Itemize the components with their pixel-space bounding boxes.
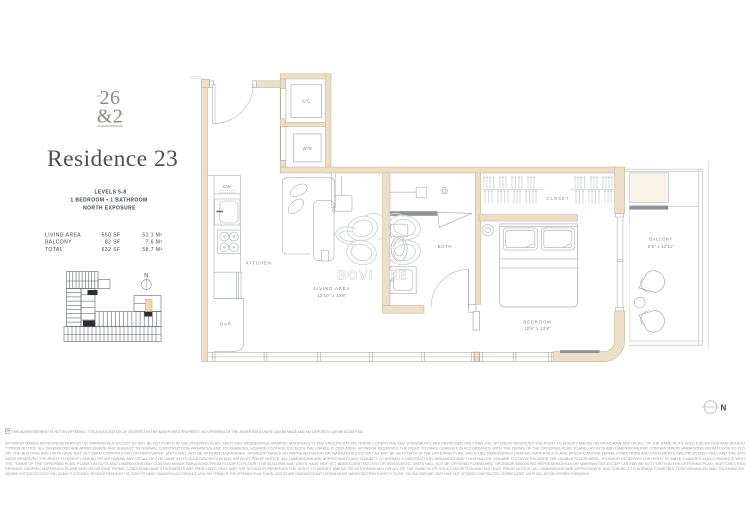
- svg-text:BAR: BAR: [220, 322, 232, 327]
- svg-text:A/C: A/C: [302, 99, 311, 104]
- svg-text:58.7 M²: 58.7 M²: [142, 247, 162, 253]
- svg-text:LEVELS 5-8: LEVELS 5-8: [94, 190, 126, 196]
- svg-text:TOTAL: TOTAL: [45, 247, 63, 253]
- svg-text:T PRIOR NOTICE. ALL DIMENSIONS: T PRIOR NOTICE. ALL DIMENSIONS ARE APPRO…: [5, 447, 745, 451]
- svg-text:DW: DW: [223, 184, 232, 189]
- svg-text:NORTH EXPOSURE: NORTH EXPOSURE: [83, 205, 136, 211]
- svg-text:BATH: BATH: [438, 244, 453, 249]
- svg-text:OR. THE BUILDING AND UNITS HAV: OR. THE BUILDING AND UNITS HAVE NOT YET …: [5, 452, 745, 456]
- svg-text:THE TERMS OF THE OFFERING PLAN: THE TERMS OF THE OFFERING PLAN. PLANS LA…: [5, 462, 746, 466]
- svg-text:BALCONY: BALCONY: [649, 237, 673, 242]
- svg-text:KITCHEN: KITCHEN: [246, 261, 272, 266]
- svg-text:SQUARE FOOTAGE EXCEEDS THE USA: SQUARE FOOTAGE EXCEEDS THE USABLE FLOOR …: [5, 472, 590, 476]
- svg-text:RE: RE: [389, 268, 408, 283]
- svg-text:51.1 M²: 51.1 M²: [142, 232, 162, 238]
- svg-text:DERINGS GRAPHIC MATERIALS PLAN: DERINGS GRAPHIC MATERIALS PLANS SPECIFIC…: [5, 467, 745, 471]
- svg-text:10′6″ x 13′8″: 10′6″ x 13′8″: [524, 326, 551, 331]
- svg-text:82 SF: 82 SF: [105, 240, 121, 246]
- svg-text:1 BEDROOM • 1 BATHROOM: 1 BEDROOM • 1 BATHROOM: [70, 198, 147, 204]
- svg-text:BALCONY: BALCONY: [45, 240, 72, 246]
- svg-text:632 SF: 632 SF: [102, 247, 121, 253]
- svg-text:LIVING AREA: LIVING AREA: [314, 286, 350, 291]
- svg-text:12′10″ x 13′8″: 12′10″ x 13′8″: [317, 293, 347, 298]
- svg-text:Residence 23: Residence 23: [47, 146, 178, 172]
- svg-text:BEDROOM: BEDROOM: [523, 319, 551, 324]
- svg-text:7.6 M²: 7.6 M²: [146, 240, 163, 246]
- svg-text:&2: &2: [97, 106, 124, 128]
- svg-text:5′5″ x 12′11″: 5′5″ x 12′11″: [648, 244, 675, 249]
- svg-text:SPONSOR MAKES NO REPRESENTATIO: SPONSOR MAKES NO REPRESENTATION OR WARRA…: [5, 442, 746, 446]
- svg-text:BOVI: BOVI: [337, 268, 374, 283]
- svg-text:THIS ADVERTISEMENT IS NOT AN O: THIS ADVERTISEMENT IS NOT AN OFFERING. I…: [12, 430, 364, 434]
- svg-text:LIVING AREA: LIVING AREA: [45, 232, 81, 238]
- svg-text:550 SF: 550 SF: [102, 232, 121, 238]
- svg-text:N: N: [721, 404, 727, 413]
- svg-text:W/D: W/D: [303, 146, 313, 151]
- svg-text:N: N: [144, 274, 148, 280]
- svg-text:CLOSET: CLOSET: [547, 196, 570, 201]
- svg-text:NSOR RESERVES THE RIGHT TO MOD: NSOR RESERVES THE RIGHT TO MODIFY AMEND …: [5, 457, 746, 461]
